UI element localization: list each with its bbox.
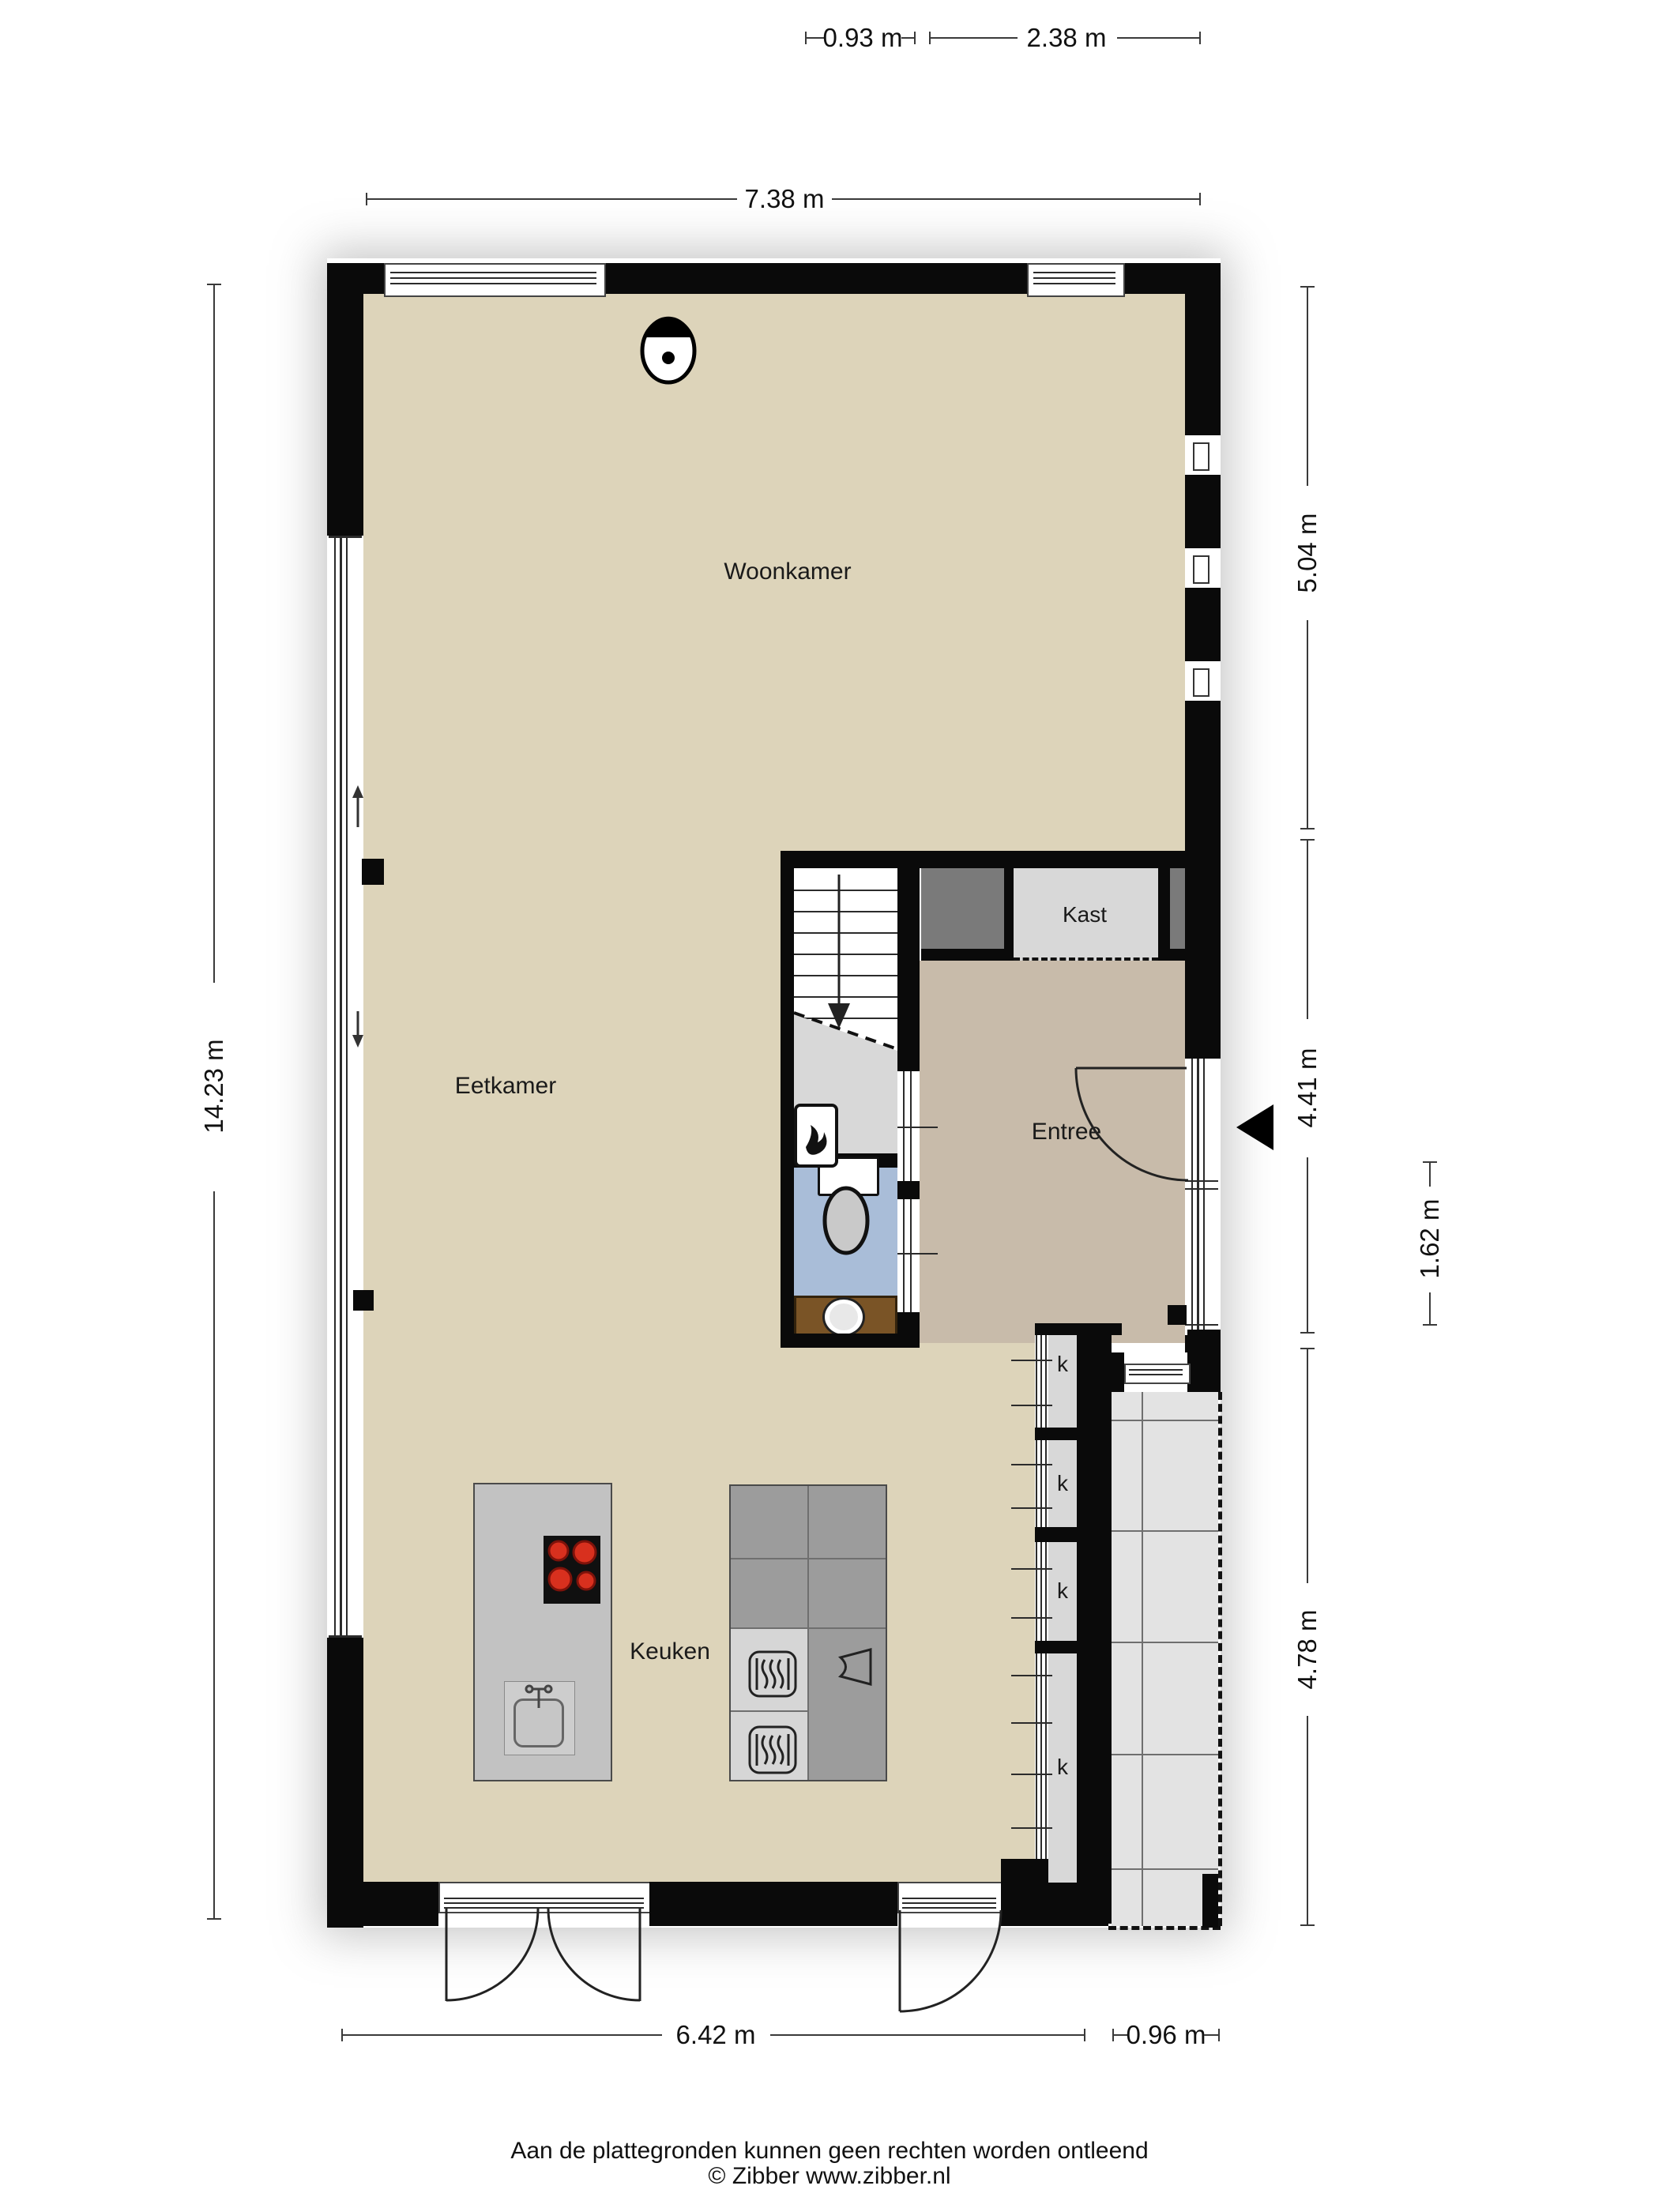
faucet-icon: [526, 1686, 551, 1708]
front-door-swing: [1076, 1068, 1188, 1180]
stairs-direction-arrow-icon: [828, 875, 850, 1029]
ceiling-light-icon: [642, 317, 694, 382]
boiler-icon: [796, 1105, 837, 1166]
single-door-swing: [900, 1910, 1001, 2011]
double-door-swing: [446, 1909, 640, 2001]
oven-icon-1: [750, 1652, 796, 1696]
cooktop-burners-icon: [549, 1541, 596, 1590]
entrance-marker-icon: [1236, 1104, 1273, 1150]
oven-icon-2: [750, 1727, 796, 1773]
hood-icon: [841, 1650, 871, 1684]
copyright-text: © Zibber www.zibber.nl: [0, 2163, 1659, 2190]
plan-vector-overlay: [0, 0, 1659, 2212]
disclaimer-text: Aan de plattegronden kunnen geen rechten…: [0, 2138, 1659, 2165]
floorplan-page: Woonkamer Eetkamer Keuken Entree Kast Ka…: [0, 0, 1659, 2212]
slide-arrow-up-icon: [352, 785, 363, 827]
slide-arrow-down-icon: [352, 1011, 363, 1048]
toilet-bowl: [825, 1188, 867, 1253]
